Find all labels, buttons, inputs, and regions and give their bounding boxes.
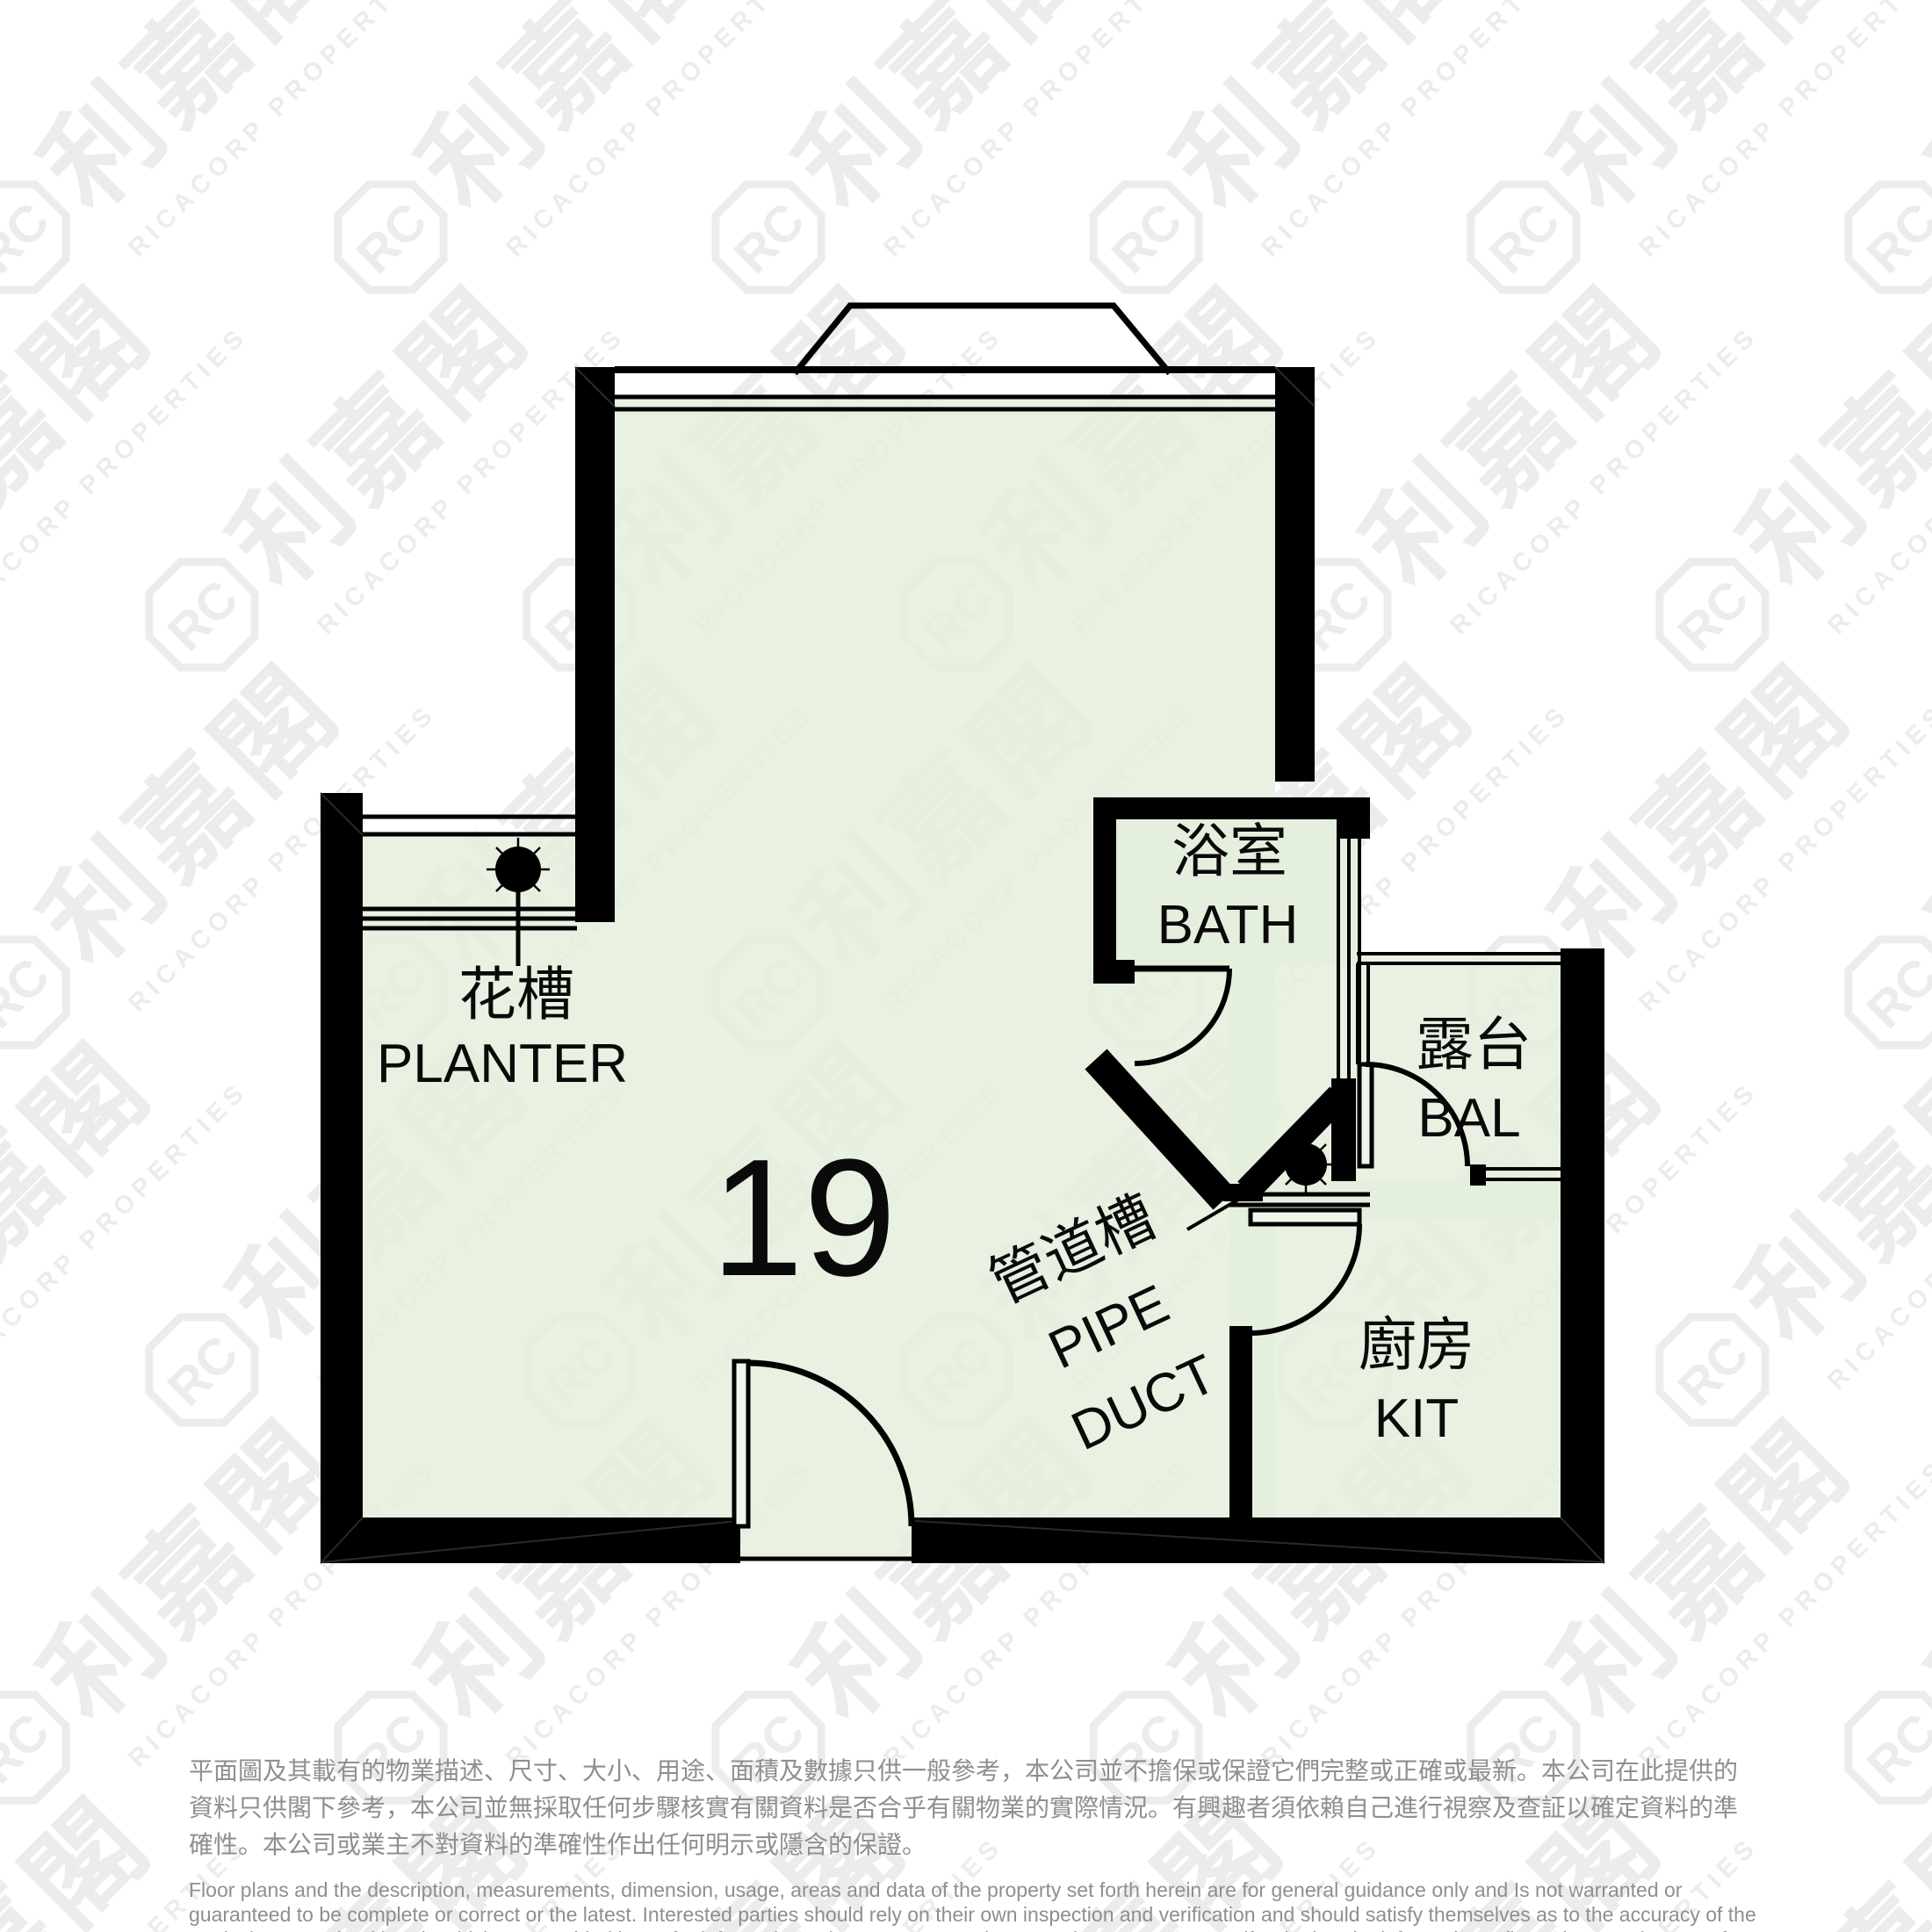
- entrance-threshold: [740, 1517, 912, 1559]
- kitchen-label-en: KIT: [1374, 1388, 1459, 1449]
- planter-label-zh: 花槽: [458, 962, 574, 1027]
- watermark-tile: [0, 975, 254, 1485]
- balcony-door-leaf: [1359, 1064, 1372, 1166]
- watermark-tile: [121, 220, 631, 730]
- wall-main-left: [575, 367, 615, 922]
- left-area: [363, 834, 615, 1517]
- wall-left-outer: [321, 793, 363, 1563]
- disclaimer-zh: 平面圖及其載有的物業描述、尺寸、大小、用途、面積及數據只供一般參考，本公司並不擔…: [189, 1753, 1756, 1864]
- wall-kitchen-left: [1229, 1326, 1252, 1517]
- floorplan-page: RC 利嘉閣 RICACORP PROPERTIES: [0, 0, 1932, 1932]
- watermark-tile: [1443, 0, 1932, 352]
- wall-bath-top-right: [1337, 797, 1370, 839]
- unit-number-label: 19: [710, 1125, 896, 1311]
- bath-label-en: BATH: [1157, 895, 1299, 955]
- wall-main-right: [1275, 367, 1315, 782]
- kitchen-label-zh: 廚房: [1359, 1312, 1474, 1377]
- bath-label-zh: 浴室: [1171, 818, 1287, 883]
- watermark-tile: [688, 0, 1198, 352]
- wall-right-outer: [1561, 948, 1604, 1563]
- watermark-tile: [0, 220, 254, 730]
- balcony-label-zh: 露台: [1416, 1012, 1532, 1077]
- disclaimer: 平面圖及其載有的物業描述、尺寸、大小、用途、面積及數據只供一般參考，本公司並不擔…: [189, 1753, 1756, 1932]
- watermark-tile: [1820, 1352, 1932, 1863]
- wall-bath-left: [1093, 797, 1116, 966]
- wall-bath-bottom-stub: [1093, 960, 1135, 984]
- entrance-door-leaf: [734, 1361, 748, 1526]
- watermark-tile: [1065, 0, 1575, 352]
- kitchen-door-leaf: [1251, 1210, 1359, 1224]
- watermark-tile: [1820, 597, 1932, 1107]
- watermark-tile: [310, 0, 820, 352]
- balcony-label-en: BAL: [1417, 1088, 1520, 1149]
- wall-bath-top: [1093, 797, 1370, 819]
- disclaimer-en: Floor plans and the description, measure…: [189, 1878, 1756, 1932]
- floorplan-svg: RC 利嘉閣 RICACORP PROPERTIES: [0, 0, 1932, 1932]
- planter-label-en: PLANTER: [377, 1034, 628, 1094]
- watermark-tile: [1254, 220, 1764, 730]
